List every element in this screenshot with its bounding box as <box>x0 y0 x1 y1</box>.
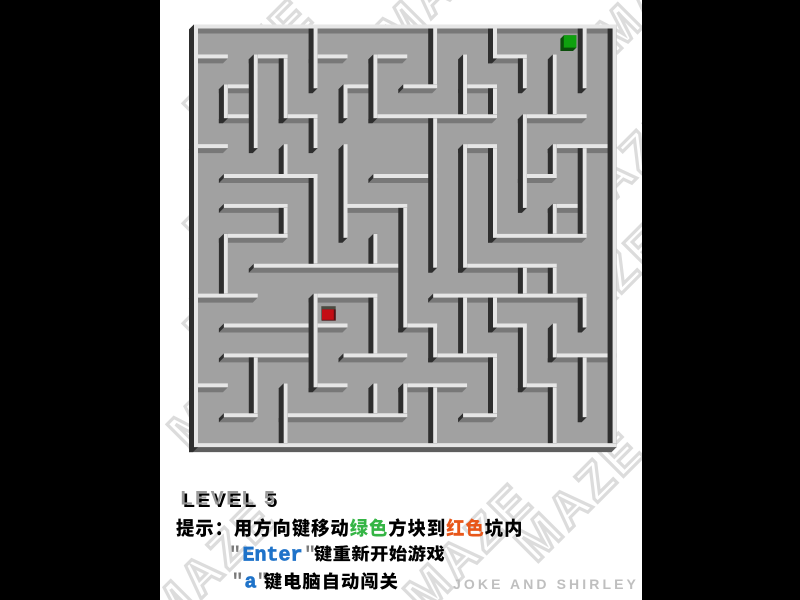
svg-text:": " <box>304 545 316 568</box>
svg-text:Enter: Enter <box>243 545 303 568</box>
svg-text:": " <box>229 545 241 568</box>
svg-text:JOKE AND SHIRLEY: JOKE AND SHIRLEY <box>453 576 639 592</box>
svg-text:a: a <box>245 572 257 595</box>
svg-text:LEVEL 5: LEVEL 5 <box>181 488 278 510</box>
svg-text:": " <box>232 572 244 595</box>
